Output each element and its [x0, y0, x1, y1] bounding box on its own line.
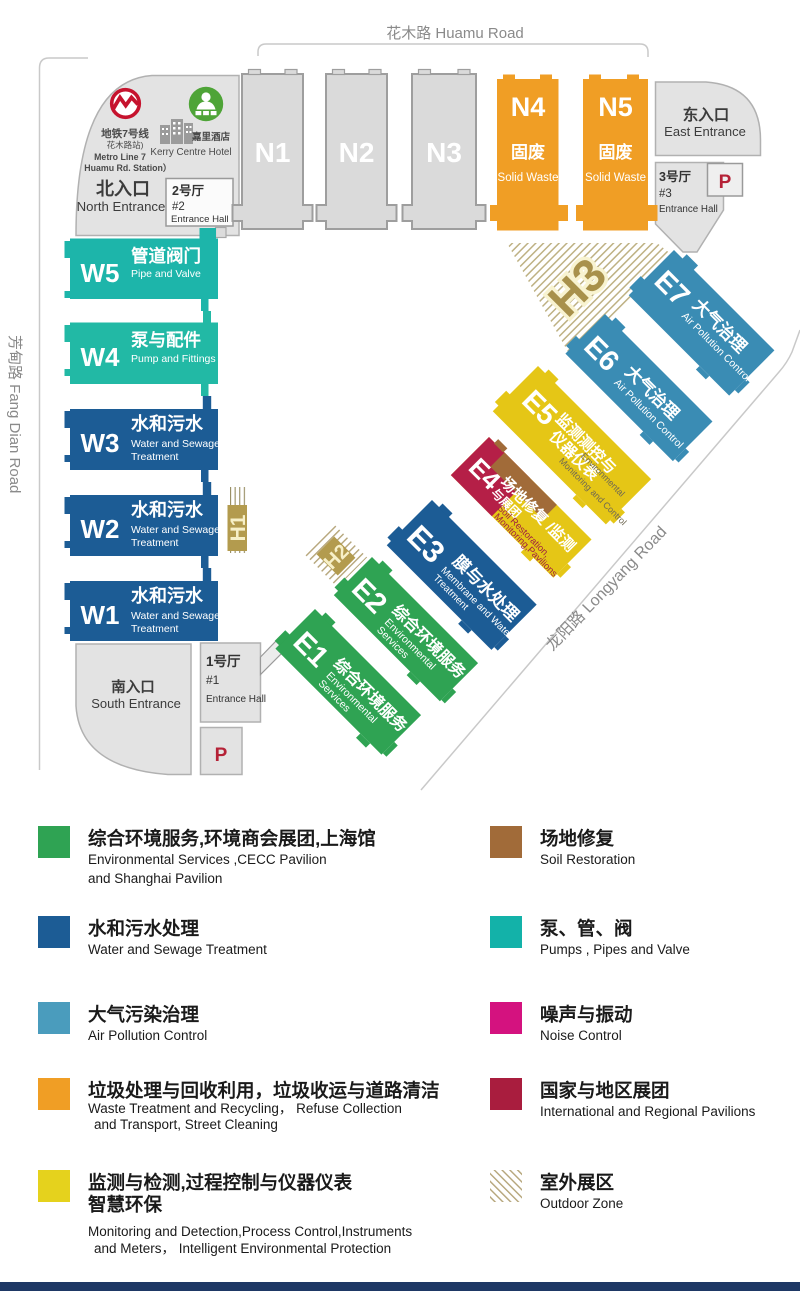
svg-text:Soil Restoration: Soil Restoration: [540, 852, 635, 867]
svg-text:Entrance Hall: Entrance Hall: [171, 214, 229, 225]
svg-text:花木路 Huamu Road: 花木路 Huamu Road: [386, 25, 524, 42]
svg-text:N5: N5: [598, 92, 633, 122]
svg-text:East Entrance: East Entrance: [664, 124, 746, 139]
svg-text:and Shanghai Pavilion: and Shanghai Pavilion: [88, 871, 222, 886]
svg-text:管道阀门: 管道阀门: [131, 246, 201, 266]
svg-text:N3: N3: [426, 137, 462, 168]
svg-text:Treatment: Treatment: [131, 537, 179, 549]
svg-text:固废: 固废: [599, 142, 633, 162]
svg-text:Water and Sewage: Water and Sewage: [131, 438, 220, 450]
svg-text:综合环境服务,环境商会展团,上海馆: 综合环境服务,环境商会展团,上海馆: [88, 828, 376, 849]
svg-text:南入口: 南入口: [111, 678, 155, 696]
svg-text:垃圾处理与回收利用，垃圾收运与道路清洁: 垃圾处理与回收利用，垃圾收运与道路清洁: [88, 1080, 440, 1101]
svg-text:智慧环保: 智慧环保: [88, 1194, 163, 1215]
svg-text:Solid Waste: Solid Waste: [585, 172, 646, 184]
svg-text:室外展区: 室外展区: [540, 1172, 614, 1193]
svg-text:Kerry Centre Hotel: Kerry Centre Hotel: [150, 147, 231, 158]
svg-text:W5: W5: [81, 258, 120, 288]
svg-text:泵、管、阀: 泵、管、阀: [540, 918, 633, 939]
svg-text:P: P: [719, 172, 732, 193]
svg-text:Outdoor Zone: Outdoor Zone: [540, 1196, 623, 1211]
svg-text:Air Pollution Control: Air Pollution Control: [88, 1028, 207, 1043]
svg-text:and Meters， Intelligent Envir: and Meters， Intelligent Environmental Pr…: [94, 1241, 391, 1256]
svg-text:Noise Control: Noise Control: [540, 1028, 622, 1043]
svg-text:#1: #1: [206, 673, 220, 687]
svg-text:Water and Sewage Treatment: Water and Sewage Treatment: [88, 942, 267, 957]
svg-text:1号厅: 1号厅: [206, 654, 241, 669]
svg-text:W4: W4: [81, 342, 121, 372]
svg-text:Water and Sewage: Water and Sewage: [131, 610, 220, 622]
svg-text:Treatment: Treatment: [131, 451, 179, 463]
svg-text:Waste Treatment and Recycling，: Waste Treatment and Recycling， Refuse Co…: [88, 1101, 402, 1116]
svg-text:芳甸路 Fang Dian Road: 芳甸路 Fang Dian Road: [6, 335, 23, 493]
svg-text:International and Regional Pav: International and Regional Pavilions: [540, 1104, 756, 1119]
svg-text:N2: N2: [339, 137, 375, 168]
svg-text:水和污水: 水和污水: [131, 585, 204, 606]
svg-text:水和污水: 水和污水: [131, 499, 204, 520]
svg-text:Pump and Fittings: Pump and Fittings: [131, 353, 216, 365]
svg-text:H1: H1: [227, 514, 250, 541]
svg-text:北入口: 北入口: [96, 179, 150, 199]
svg-text:3号厅: 3号厅: [659, 169, 691, 184]
svg-text:监测与检测,过程控制与仪器仪表: 监测与检测,过程控制与仪器仪表: [88, 1172, 353, 1193]
svg-text:N1: N1: [255, 137, 291, 168]
svg-text:场地修复: 场地修复: [540, 828, 615, 849]
svg-text:and Transport, Street Cleaning: and Transport, Street Cleaning: [94, 1117, 278, 1132]
svg-text:Pipe and Valve: Pipe and Valve: [131, 268, 201, 280]
svg-text:Huamu Rd. Station）: Huamu Rd. Station）: [84, 163, 171, 173]
svg-text:地铁7号线: 地铁7号线: [101, 127, 149, 140]
svg-text:大气污染治理: 大气污染治理: [88, 1004, 200, 1025]
svg-text:固废: 固废: [511, 142, 545, 162]
svg-text:Solid Waste: Solid Waste: [498, 172, 559, 184]
svg-text:泵与配件: 泵与配件: [131, 330, 201, 350]
svg-text:水和污水: 水和污水: [131, 413, 204, 434]
svg-text:水和污水处理: 水和污水处理: [88, 918, 200, 939]
svg-text:#3: #3: [659, 188, 672, 200]
svg-text:东入口: 东入口: [683, 105, 730, 124]
svg-text:P: P: [215, 745, 228, 766]
svg-text:Water and Sewage: Water and Sewage: [131, 524, 220, 536]
svg-text:South Entrance: South Entrance: [91, 696, 181, 711]
svg-text:Entrance Hall: Entrance Hall: [659, 204, 718, 215]
svg-text:Treatment: Treatment: [131, 623, 179, 635]
svg-text:W1: W1: [81, 600, 120, 630]
svg-text:Pumps , Pipes and Valve: Pumps , Pipes and Valve: [540, 942, 690, 957]
svg-text:#2: #2: [172, 201, 185, 213]
svg-text:W3: W3: [81, 428, 120, 458]
svg-text:North Entrance: North Entrance: [77, 199, 166, 214]
svg-text:Entrance Hall: Entrance Hall: [206, 694, 266, 705]
svg-text:Metro Line 7: Metro Line 7: [94, 152, 146, 162]
svg-text:Monitoring and Detection,Proce: Monitoring and Detection,Process Control…: [88, 1224, 412, 1239]
svg-text:国家与地区展团: 国家与地区展团: [540, 1080, 670, 1101]
svg-text:噪声与振动: 噪声与振动: [540, 1004, 633, 1025]
svg-text:花木路站): 花木路站): [107, 140, 144, 150]
svg-text:N4: N4: [511, 92, 546, 122]
svg-text:2号厅: 2号厅: [172, 183, 204, 198]
svg-text:Environmental Services ,CECC P: Environmental Services ,CECC Pavilion: [88, 852, 327, 867]
svg-text:嘉里酒店: 嘉里酒店: [191, 131, 231, 143]
svg-text:W2: W2: [81, 514, 120, 544]
